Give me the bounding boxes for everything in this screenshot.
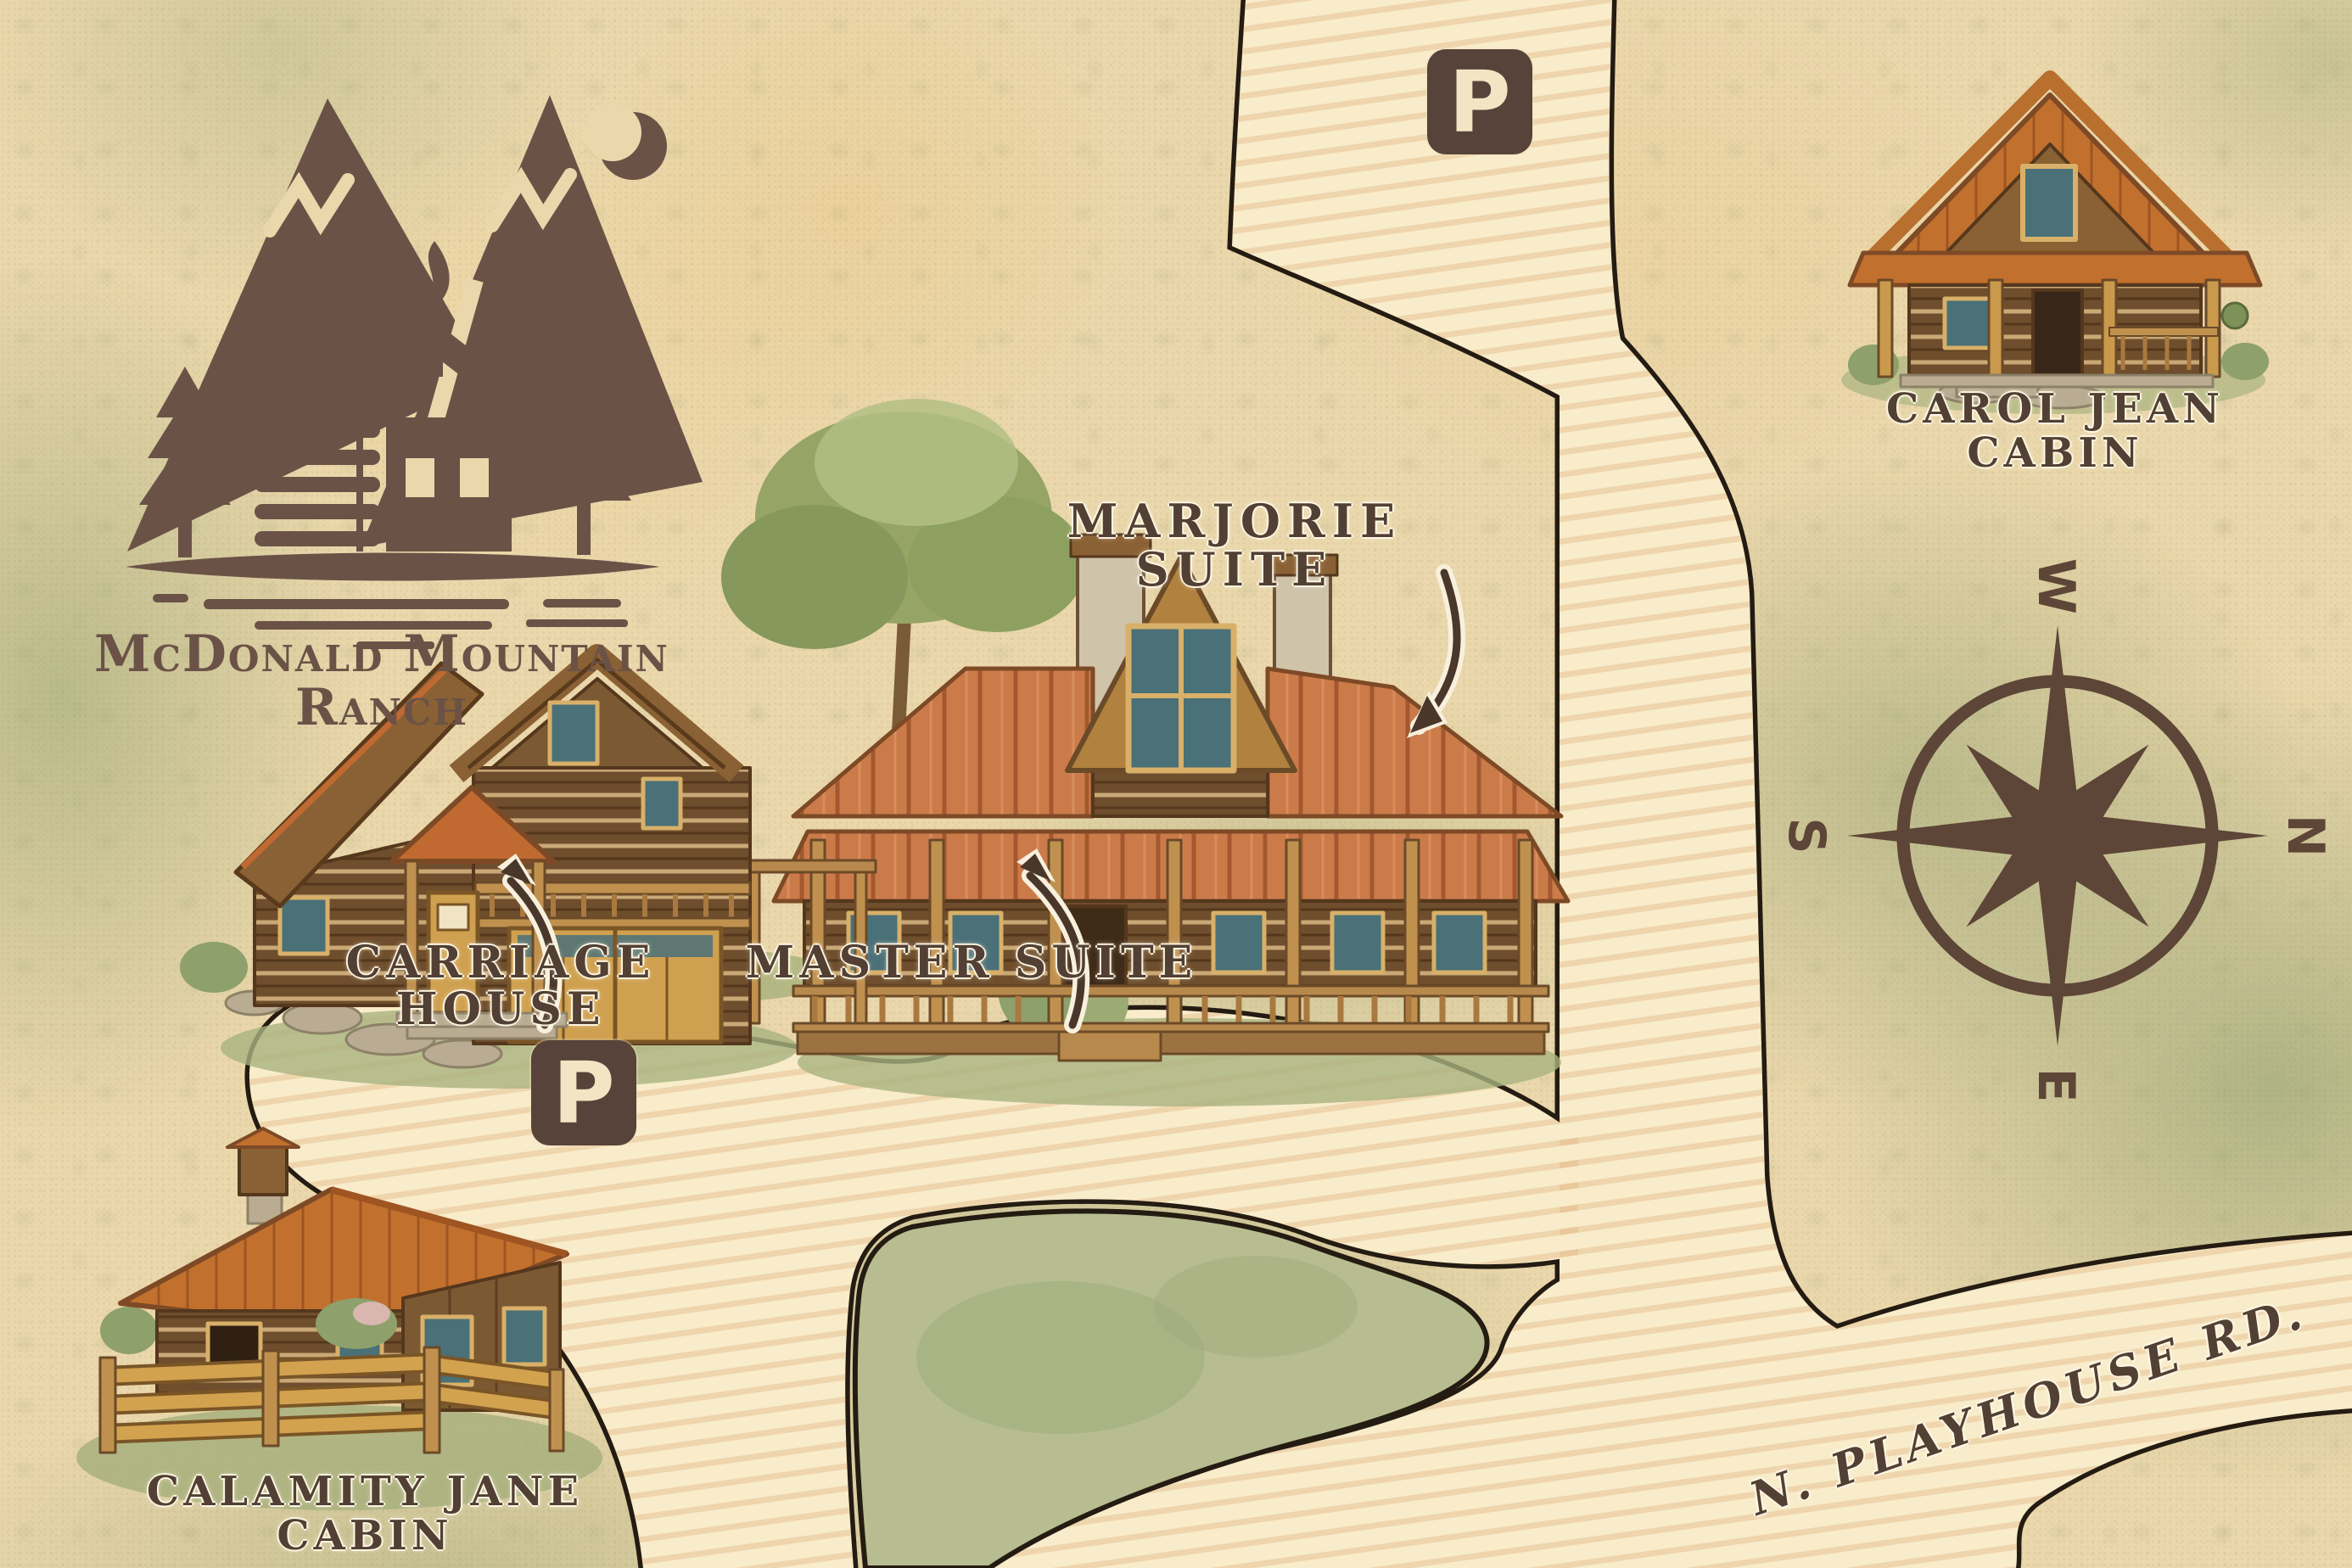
- label-carol-line1: CAROL JEAN: [1792, 387, 2318, 431]
- compass-south: S: [1777, 817, 1836, 854]
- ranch-logo-graphic: [126, 95, 703, 649]
- parking-sign-courtyard: P: [531, 1040, 636, 1145]
- label-carriage-house: CARRIAGE HOUSE: [238, 940, 764, 1033]
- ranch-title: McDonald Mountain Ranch: [47, 628, 717, 735]
- ranch-map: N E S W: [0, 0, 2352, 1568]
- map-artwork: N E S W: [0, 0, 2352, 1568]
- label-carol-line2: CABIN: [1792, 431, 2318, 475]
- label-calamity-line1: CALAMITY JANE: [102, 1470, 628, 1514]
- label-master-suite: MASTER SUITE: [721, 940, 1222, 987]
- compass-west: W: [2026, 558, 2086, 614]
- label-calamity-jane-cabin: CALAMITY JANE CABIN: [102, 1470, 628, 1558]
- label-carol-jean-cabin: CAROL JEAN CABIN: [1792, 387, 2318, 475]
- compass-north: N: [2276, 815, 2335, 857]
- parking-sign-north: P: [1427, 49, 1532, 154]
- compass-rose: N E S W: [1777, 558, 2335, 1103]
- compass-east: E: [2026, 1068, 2086, 1103]
- carol-jean-cabin-illustration: [1850, 78, 2260, 397]
- label-marjorie-suite: MARJORIE SUITE: [972, 497, 1498, 593]
- label-calamity-line2: CABIN: [102, 1514, 628, 1558]
